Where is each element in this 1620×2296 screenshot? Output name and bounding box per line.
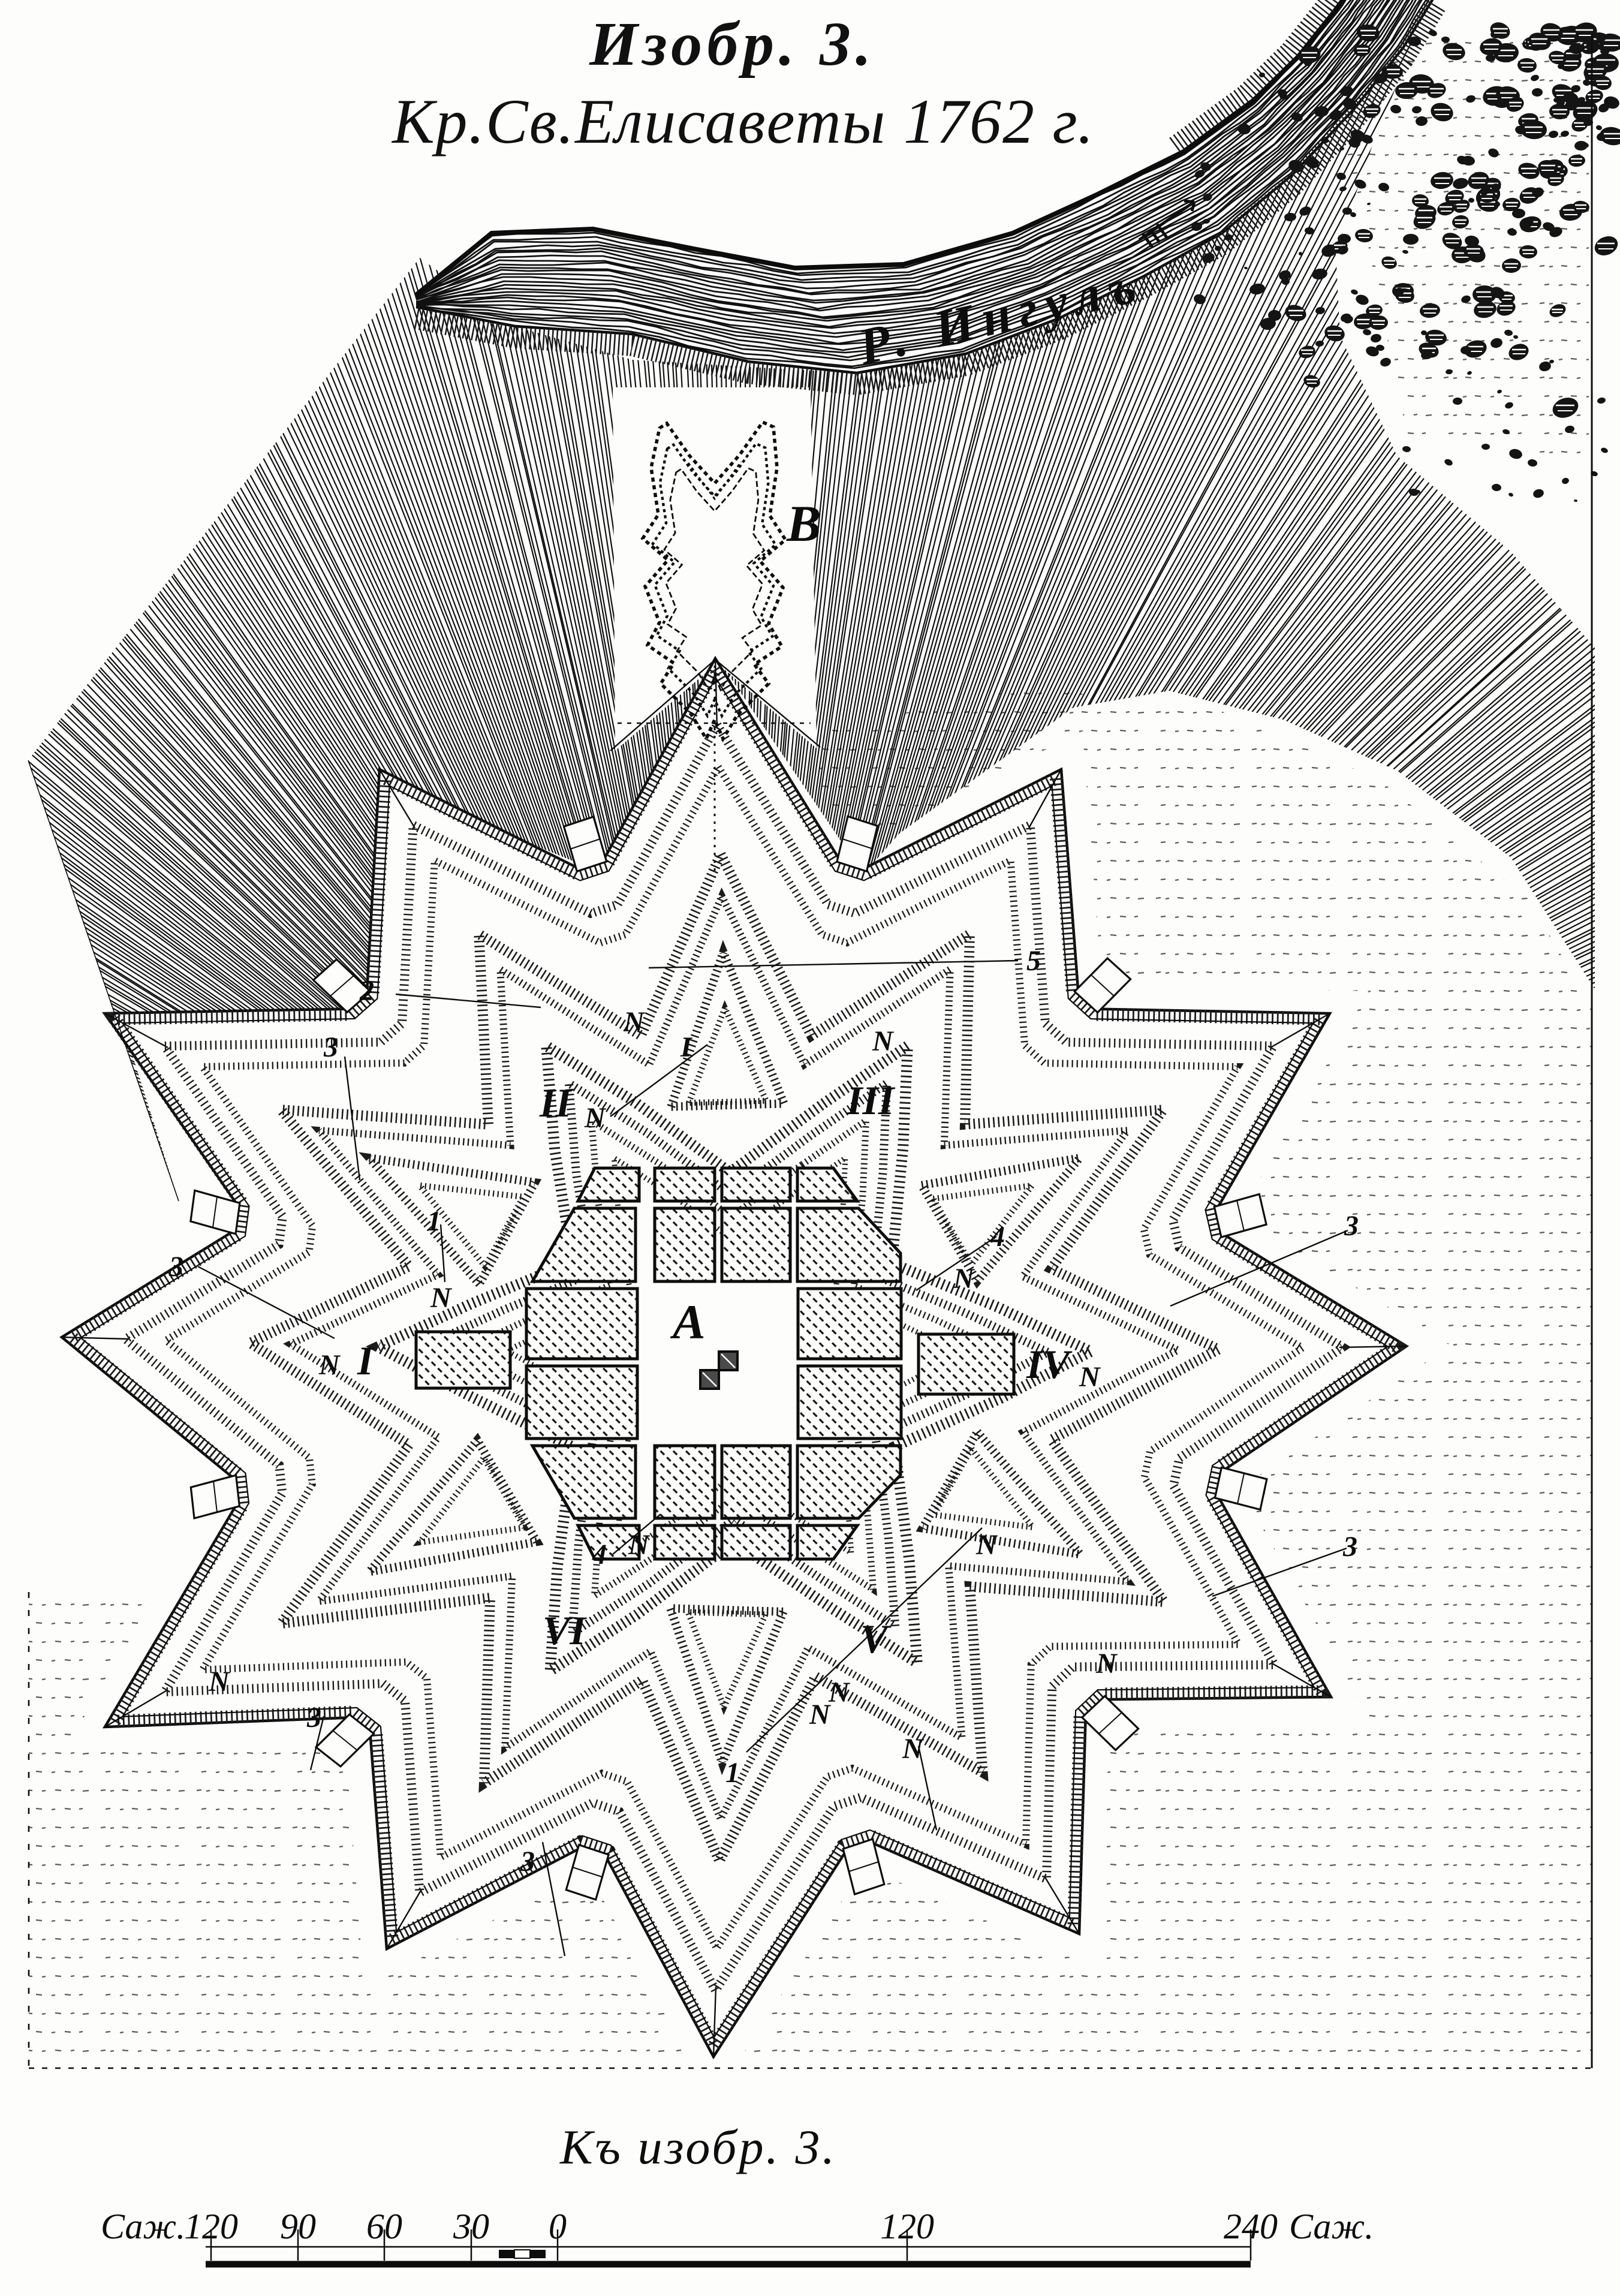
svg-text:3: 3	[520, 1846, 535, 1877]
svg-text:N: N	[872, 1025, 895, 1057]
svg-text:I: I	[357, 1338, 375, 1383]
svg-text:Кр.Св.Елисаветы 1762 г.: Кр.Св.Елисаветы 1762 г.	[391, 86, 1095, 157]
svg-text:0: 0	[549, 2207, 567, 2246]
svg-text:III: III	[846, 1078, 896, 1123]
svg-text:N: N	[1095, 1648, 1118, 1680]
svg-text:3: 3	[1342, 1531, 1357, 1563]
svg-text:B: B	[786, 495, 821, 552]
svg-text:N: N	[975, 1529, 998, 1561]
svg-text:N: N	[623, 1006, 646, 1038]
svg-text:N: N	[584, 1102, 607, 1134]
svg-text:Саж.: Саж.	[101, 2207, 185, 2246]
svg-text:3: 3	[1344, 1210, 1359, 1242]
svg-text:N: N	[628, 1529, 651, 1561]
svg-text:Саж.: Саж.	[1289, 2207, 1374, 2246]
svg-text:N: N	[430, 1282, 453, 1314]
svg-text:N: N	[318, 1349, 341, 1381]
svg-text:II: II	[539, 1080, 573, 1126]
svg-text:120: 120	[880, 2207, 934, 2246]
svg-text:I: I	[680, 1031, 693, 1063]
svg-text:N: N	[809, 1699, 832, 1731]
svg-text:Къ изобр. 3.: Къ изобр. 3.	[559, 2120, 837, 2174]
svg-text:120: 120	[184, 2207, 238, 2246]
svg-text:N: N	[828, 1677, 851, 1708]
svg-text:1: 1	[725, 1757, 740, 1789]
svg-text:240: 240	[1224, 2207, 1278, 2246]
svg-text:N: N	[1079, 1361, 1101, 1393]
svg-text:N: N	[208, 1666, 231, 1698]
svg-text:2: 2	[359, 975, 374, 1007]
svg-text:3: 3	[168, 1251, 183, 1283]
svg-text:30: 30	[453, 2207, 489, 2246]
svg-text:3: 3	[323, 1031, 338, 1063]
svg-text:Изобр. 3.: Изобр. 3.	[589, 10, 876, 79]
svg-text:4: 4	[592, 1539, 607, 1570]
svg-text:3: 3	[306, 1702, 321, 1734]
svg-text:VI: VI	[543, 1608, 587, 1653]
svg-text:60: 60	[366, 2207, 402, 2246]
svg-text:4: 4	[990, 1221, 1005, 1253]
svg-text:N: N	[953, 1263, 975, 1295]
svg-text:A: A	[670, 1295, 706, 1349]
svg-text:90: 90	[280, 2207, 316, 2246]
svg-text:5: 5	[1026, 945, 1041, 977]
svg-text:IV: IV	[1026, 1341, 1072, 1387]
svg-text:1: 1	[427, 1205, 441, 1237]
